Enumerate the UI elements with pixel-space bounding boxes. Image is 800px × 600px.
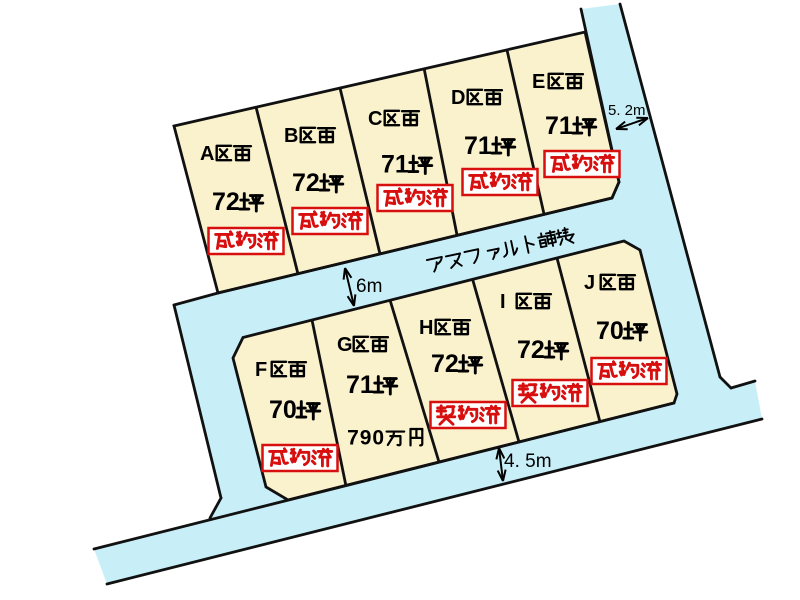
svg-text:1: 1: [395, 151, 409, 179]
svg-text:7: 7: [545, 112, 559, 140]
svg-text:A: A: [200, 143, 214, 165]
svg-text:7: 7: [269, 396, 283, 424]
svg-text:0: 0: [372, 427, 384, 450]
svg-text:1: 1: [559, 112, 573, 140]
svg-text:0: 0: [283, 396, 297, 424]
svg-text:0: 0: [610, 317, 624, 345]
svg-text:B: B: [284, 125, 298, 147]
svg-text:7: 7: [596, 317, 610, 345]
svg-text:J: J: [584, 272, 595, 294]
svg-text:1: 1: [360, 371, 374, 399]
svg-text:2: 2: [445, 350, 459, 378]
svg-text:7: 7: [212, 188, 226, 216]
svg-text:7: 7: [381, 151, 395, 179]
svg-text:6m: 6m: [356, 276, 382, 297]
svg-text:7: 7: [292, 169, 306, 197]
svg-text:2: 2: [531, 336, 545, 364]
svg-text:7: 7: [464, 132, 478, 160]
svg-text:5. 2m: 5. 2m: [608, 102, 646, 119]
svg-text:7: 7: [517, 336, 531, 364]
svg-text:7: 7: [347, 427, 359, 450]
svg-text:D: D: [451, 87, 465, 109]
svg-text:1: 1: [478, 132, 492, 160]
svg-text:9: 9: [360, 427, 372, 450]
svg-text:H: H: [419, 317, 433, 339]
svg-text:E: E: [532, 71, 545, 93]
svg-text:4. 5m: 4. 5m: [504, 451, 552, 472]
svg-text:2: 2: [306, 169, 320, 197]
svg-text:C: C: [368, 108, 382, 130]
svg-text:G: G: [337, 334, 353, 356]
svg-text:I: I: [500, 291, 506, 313]
svg-text:7: 7: [431, 350, 445, 378]
svg-text:2: 2: [226, 188, 240, 216]
svg-text:F: F: [255, 359, 267, 381]
svg-text:7: 7: [346, 371, 360, 399]
